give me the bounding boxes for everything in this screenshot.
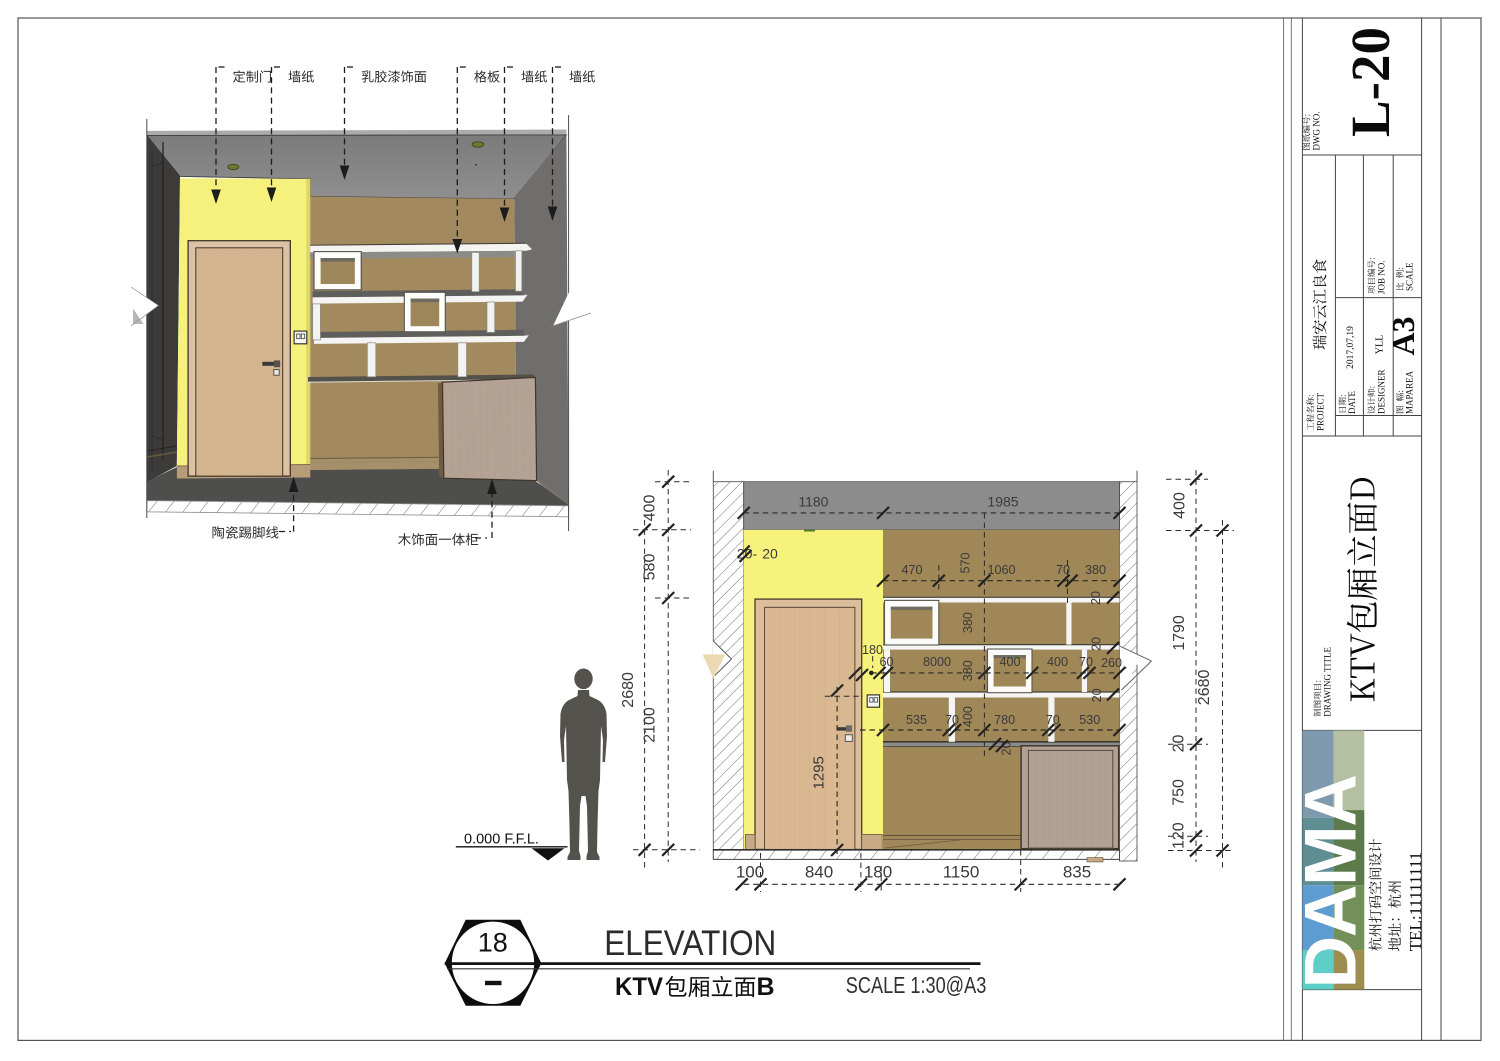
svg-text:530: 530	[1079, 713, 1100, 727]
svg-text:400: 400	[642, 495, 659, 522]
svg-text:70: 70	[1079, 655, 1093, 669]
svg-text:MAPAREA: MAPAREA	[1405, 370, 1415, 414]
svg-text:750: 750	[1171, 779, 1188, 806]
svg-text:1150: 1150	[943, 863, 980, 882]
svg-text:840: 840	[805, 863, 833, 882]
svg-text:20: 20	[1089, 591, 1103, 605]
svg-text:DESIGNER: DESIGNER	[1377, 370, 1387, 415]
svg-text:YLL: YLL	[1375, 335, 1386, 354]
svg-text:70: 70	[1046, 713, 1060, 727]
svg-text:535: 535	[906, 713, 927, 727]
svg-text:570: 570	[959, 552, 973, 573]
svg-text:1985: 1985	[987, 493, 1018, 509]
svg-text:1295: 1295	[810, 756, 827, 789]
svg-text:260: 260	[1101, 656, 1122, 670]
svg-text:1060: 1060	[987, 563, 1015, 577]
svg-text:380: 380	[961, 612, 975, 633]
svg-text:70: 70	[1056, 563, 1070, 577]
svg-text:KTV: KTV	[615, 973, 663, 1001]
svg-text:2680: 2680	[1196, 670, 1213, 706]
svg-text:780: 780	[994, 713, 1015, 727]
svg-text:60: 60	[879, 655, 893, 669]
svg-text:JOB NO.: JOB NO.	[1377, 260, 1387, 294]
svg-text:B: B	[757, 973, 775, 1001]
svg-text:DRAWING TITLE: DRAWING TITLE	[1323, 646, 1333, 716]
svg-text:380: 380	[961, 660, 975, 681]
svg-text:2100: 2100	[642, 707, 659, 743]
svg-text:2017,07,19: 2017,07,19	[1346, 326, 1356, 369]
svg-text:835: 835	[1063, 863, 1091, 882]
svg-text:470: 470	[901, 563, 922, 577]
svg-text:400: 400	[1047, 655, 1068, 669]
svg-text:400: 400	[961, 706, 975, 727]
svg-text:100: 100	[736, 863, 764, 882]
svg-text:20: 20	[999, 741, 1013, 755]
svg-text:0.000 F.F.L.: 0.000 F.F.L.	[464, 832, 539, 848]
svg-text:20: 20	[1090, 637, 1104, 651]
svg-text:1790: 1790	[1171, 615, 1188, 651]
svg-text:TEL:11111111: TEL:11111111	[1406, 852, 1425, 951]
svg-text:ELEVATION: ELEVATION	[604, 924, 776, 963]
svg-text:PROJECT: PROJECT	[1316, 392, 1326, 431]
svg-text:18: 18	[478, 928, 508, 958]
svg-text:SCALE: SCALE	[1405, 262, 1415, 291]
svg-text:SCALE 1:30@A3: SCALE 1:30@A3	[846, 972, 987, 998]
svg-text:DWG NO.: DWG NO.	[1312, 112, 1322, 151]
svg-text:DAMA: DAMA	[1291, 776, 1372, 989]
svg-text:2680: 2680	[620, 672, 637, 708]
svg-text:20: 20	[1090, 688, 1104, 702]
svg-text:20: 20	[1171, 735, 1188, 753]
svg-text:380: 380	[1085, 563, 1106, 577]
svg-text:A3: A3	[1385, 316, 1421, 355]
svg-text:400: 400	[1172, 492, 1189, 519]
svg-text:180: 180	[864, 863, 892, 882]
svg-text:8000: 8000	[923, 655, 951, 669]
svg-text:L-20: L-20	[1340, 27, 1401, 137]
svg-text:20: 20	[762, 546, 778, 562]
svg-text:DATE: DATE	[1347, 391, 1357, 414]
svg-text:70: 70	[945, 713, 959, 727]
svg-text:400: 400	[999, 655, 1020, 669]
svg-text:120: 120	[1171, 822, 1188, 849]
svg-text:1180: 1180	[798, 493, 828, 509]
svg-text:580: 580	[642, 554, 659, 581]
